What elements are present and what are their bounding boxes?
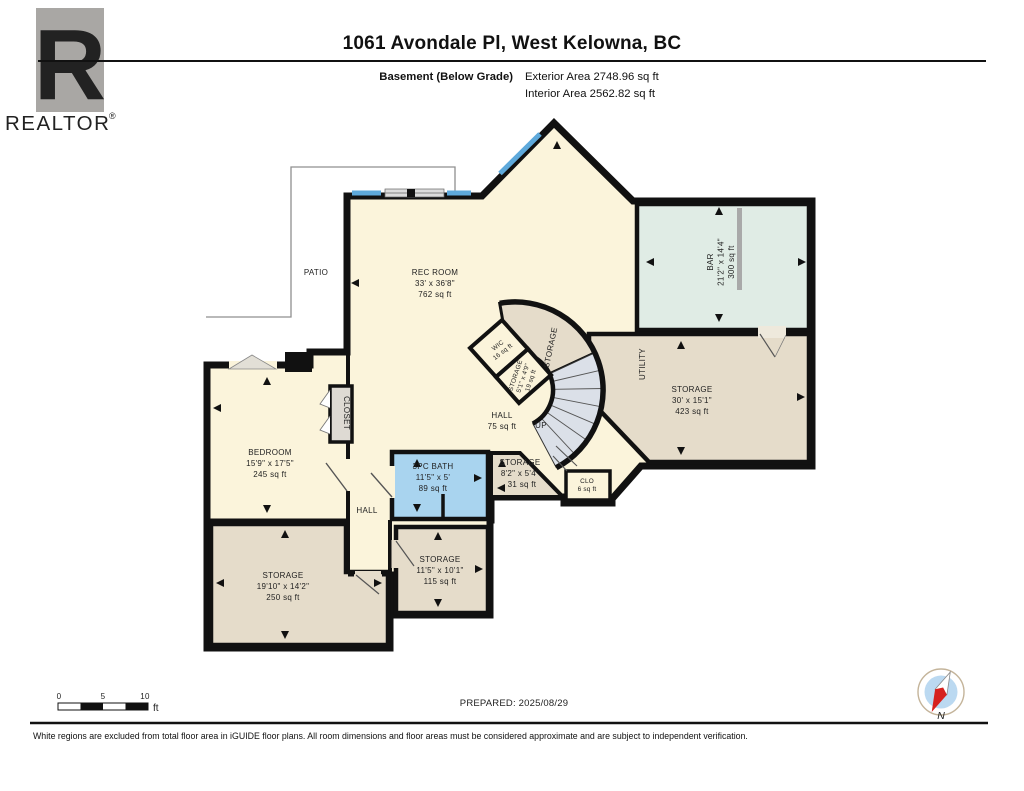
realtor-r-glyph: R bbox=[34, 9, 106, 121]
svg-text:BEDROOM: BEDROOM bbox=[248, 448, 291, 457]
svg-text:STORAGE: STORAGE bbox=[262, 571, 303, 580]
compass-n-label: N bbox=[937, 710, 945, 722]
bar-counter bbox=[737, 208, 742, 290]
floor-plan-svg: R REALTOR ® bbox=[0, 0, 1024, 791]
svg-text:3PC BATH: 3PC BATH bbox=[413, 462, 454, 471]
svg-text:STORAGE: STORAGE bbox=[671, 385, 712, 394]
svg-text:300 sq ft: 300 sq ft bbox=[727, 245, 736, 279]
svg-text:11'5" x 5': 11'5" x 5' bbox=[416, 473, 451, 482]
patio-label: PATIO bbox=[304, 268, 328, 277]
realtor-wordmark: REALTOR bbox=[5, 112, 110, 135]
footer-disclaimer: White regions are excluded from total fl… bbox=[33, 731, 978, 741]
prepared-date: PREPARED: 2025/08/29 bbox=[362, 698, 666, 709]
svg-text:BAR: BAR bbox=[706, 253, 715, 270]
scale-bar: 0 5 10 ft bbox=[57, 692, 159, 714]
svg-text:6 sq ft: 6 sq ft bbox=[578, 486, 597, 493]
svg-text:30' x 15'1": 30' x 15'1" bbox=[672, 396, 712, 405]
svg-text:15'9" x 17'5": 15'9" x 17'5" bbox=[246, 459, 294, 468]
room-label-utility: UTILITY bbox=[638, 348, 647, 380]
door-gap bbox=[345, 460, 351, 491]
svg-text:11'5" x 10'1": 11'5" x 10'1" bbox=[416, 566, 463, 575]
svg-text:21'2" x 14'4": 21'2" x 14'4" bbox=[717, 238, 726, 286]
svg-text:STORAGE: STORAGE bbox=[499, 458, 540, 467]
svg-text:245 sq ft: 245 sq ft bbox=[253, 470, 287, 479]
svg-text:HALL: HALL bbox=[491, 411, 512, 420]
registered-mark: ® bbox=[109, 111, 116, 121]
svg-text:19'10" x 14'2": 19'10" x 14'2" bbox=[257, 582, 310, 591]
svg-text:75 sq ft: 75 sq ft bbox=[488, 422, 517, 431]
door-gap bbox=[389, 466, 395, 498]
scale-tick-5: 5 bbox=[101, 692, 106, 701]
floor-plan-page: 1061 Avondale Pl, West Kelowna, BC Basem… bbox=[0, 0, 1024, 791]
scale-tick-10: 10 bbox=[140, 692, 150, 701]
svg-text:250 sq ft: 250 sq ft bbox=[266, 593, 300, 602]
sliding-door bbox=[385, 189, 444, 197]
svg-text:115 sq ft: 115 sq ft bbox=[424, 577, 457, 586]
realtor-logo: R REALTOR ® bbox=[5, 8, 116, 135]
svg-text:STORAGE: STORAGE bbox=[419, 555, 460, 564]
svg-text:89 sq ft: 89 sq ft bbox=[419, 484, 448, 493]
svg-text:CLO: CLO bbox=[580, 478, 594, 485]
room-label-clo: CLO 6 sq ft bbox=[578, 478, 597, 493]
svg-text:762 sq ft: 762 sq ft bbox=[418, 290, 452, 299]
room-label-rec-room: REC ROOM 33' x 36'8" 762 sq ft bbox=[412, 268, 458, 299]
compass: N bbox=[918, 669, 964, 722]
svg-text:REC ROOM: REC ROOM bbox=[412, 268, 458, 277]
room-label-hall-lower: HALL bbox=[356, 506, 377, 515]
door-gap bbox=[392, 540, 399, 568]
svg-text:423 sq ft: 423 sq ft bbox=[675, 407, 709, 416]
room-label-storage-main: STORAGE 30' x 15'1" 423 sq ft bbox=[671, 385, 712, 416]
stairs-up-label: UP bbox=[535, 421, 547, 430]
room-label-closet: CLOSET bbox=[342, 396, 351, 430]
svg-text:8'2" x 5'4": 8'2" x 5'4" bbox=[501, 469, 539, 478]
svg-text:31 sq ft: 31 sq ft bbox=[508, 480, 537, 489]
scale-tick-0: 0 bbox=[57, 692, 62, 701]
door-gap bbox=[355, 571, 381, 577]
scale-unit: ft bbox=[153, 703, 159, 714]
svg-text:33' x 36'8": 33' x 36'8" bbox=[415, 279, 455, 288]
door-gap bbox=[758, 326, 786, 338]
